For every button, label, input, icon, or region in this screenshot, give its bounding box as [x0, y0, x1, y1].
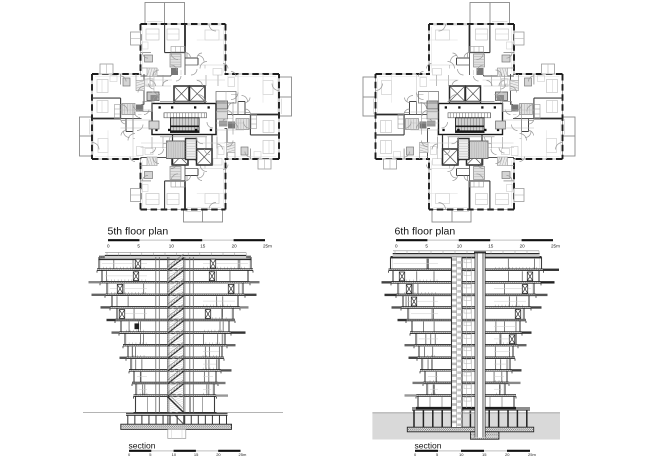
svg-text:20: 20 [505, 452, 510, 457]
svg-text:15: 15 [482, 452, 487, 457]
svg-text:10: 10 [169, 244, 175, 249]
svg-text:section: section [415, 441, 442, 451]
svg-text:5: 5 [425, 244, 428, 249]
svg-text:15: 15 [200, 244, 206, 249]
svg-text:15: 15 [488, 244, 494, 249]
svg-text:15: 15 [194, 452, 199, 457]
svg-text:0: 0 [395, 244, 398, 249]
svg-text:20: 20 [232, 244, 238, 249]
svg-text:10: 10 [459, 452, 464, 457]
svg-text:20: 20 [520, 244, 526, 249]
svg-text:25m: 25m [263, 244, 272, 249]
svg-text:25m: 25m [551, 244, 560, 249]
svg-text:10: 10 [172, 452, 177, 457]
svg-text:5th floor plan: 5th floor plan [108, 226, 169, 238]
svg-text:10: 10 [457, 244, 463, 249]
svg-text:20: 20 [216, 452, 221, 457]
svg-text:5: 5 [137, 244, 140, 249]
svg-text:25m: 25m [528, 452, 536, 457]
svg-text:6th floor plan: 6th floor plan [395, 226, 456, 238]
svg-text:0: 0 [107, 244, 110, 249]
svg-text:section: section [129, 441, 156, 451]
svg-text:25m: 25m [239, 452, 247, 457]
